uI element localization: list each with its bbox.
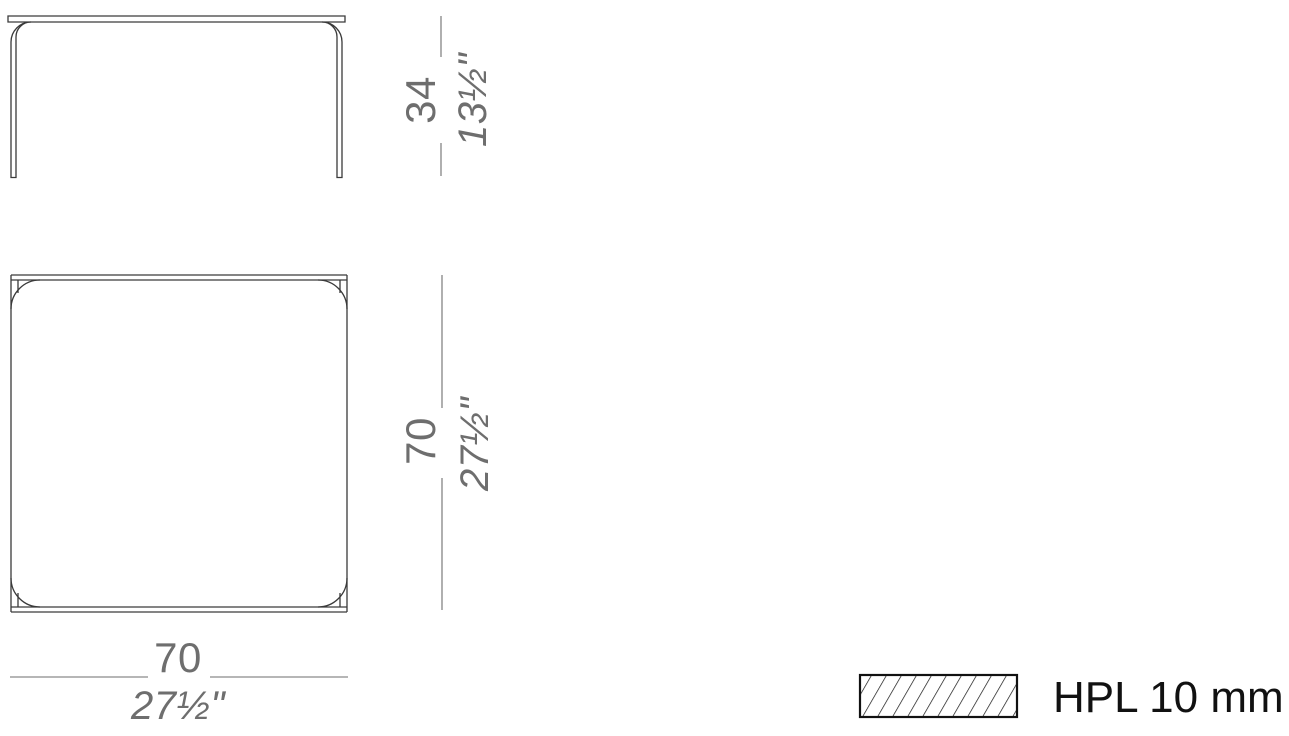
plan-tabletop-corner-radii <box>11 280 347 607</box>
technical-drawing-page: 34 13½" 70 27½" 70 27½" HPL 10 mm <box>0 0 1289 736</box>
depth-imperial-label: 27½" <box>453 396 497 492</box>
height-dimension: 34 13½" <box>397 16 495 176</box>
front-left-leg <box>11 22 31 178</box>
width-dimension: 70 27½" <box>10 634 348 728</box>
width-imperial-label: 27½" <box>130 684 226 728</box>
depth-dimension: 70 27½" <box>397 275 497 610</box>
tabletop-front-profile <box>8 16 345 22</box>
material-label: HPL 10 mm <box>1053 673 1284 722</box>
front-elevation-view <box>8 16 345 178</box>
plan-frame-outline <box>11 275 347 612</box>
width-metric-label: 70 <box>154 634 202 681</box>
depth-metric-label: 70 <box>397 417 444 465</box>
front-right-leg <box>322 22 342 178</box>
plan-leg-edge-ticks <box>18 280 340 607</box>
drawing-canvas: 34 13½" 70 27½" 70 27½" HPL 10 mm <box>0 0 1289 736</box>
material-hatch-swatch <box>860 675 1017 717</box>
plan-view <box>11 275 347 612</box>
material-legend: HPL 10 mm <box>860 673 1284 722</box>
height-imperial-label: 13½" <box>451 52 495 147</box>
height-metric-label: 34 <box>397 76 444 124</box>
